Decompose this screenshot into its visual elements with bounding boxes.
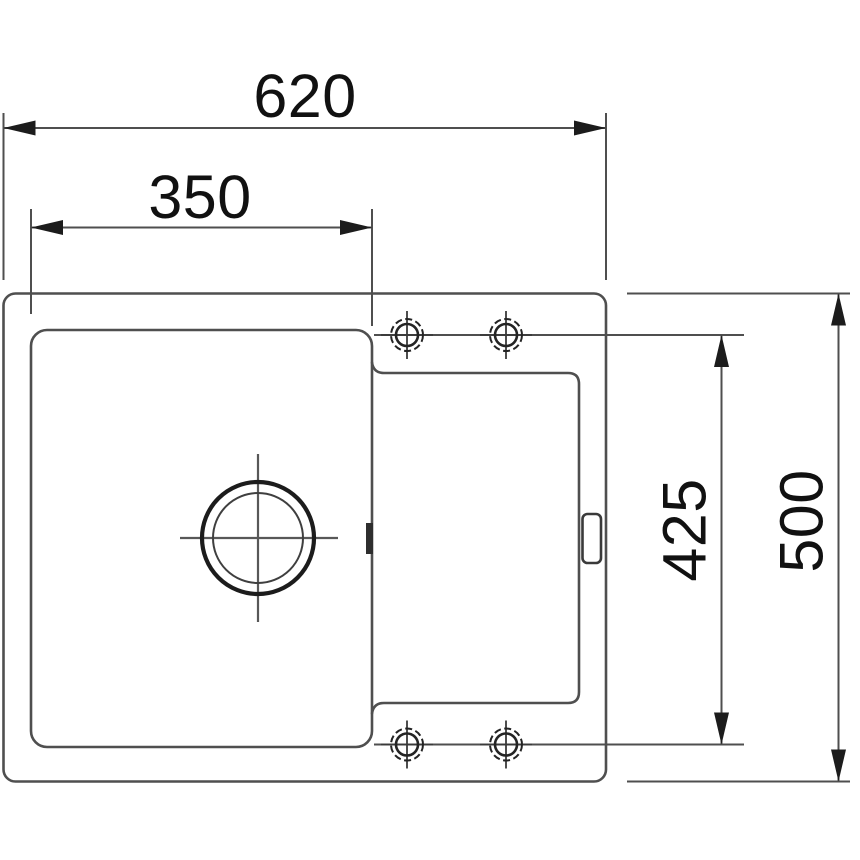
dimension-label-bowl-width: 350 xyxy=(148,163,251,231)
arrowhead-right xyxy=(574,121,606,136)
sink-technical-drawing: 620 350 425 500 xyxy=(0,0,860,860)
arrowhead-right xyxy=(340,220,372,235)
arrowhead-top xyxy=(831,294,846,326)
drain-hole xyxy=(180,454,338,622)
dimension-drawing-svg: 620 350 425 500 xyxy=(0,0,860,860)
dimension-label-overall-width: 620 xyxy=(253,62,356,130)
tap-hole-top-right xyxy=(480,311,532,359)
dimension-bowl-width: 350 xyxy=(31,163,372,326)
tap-hole-top-left xyxy=(381,311,433,359)
dimension-tap-axis-span: 425 xyxy=(650,335,729,745)
dimension-overall-width: 620 xyxy=(4,62,607,280)
tap-hole-bottom-left xyxy=(381,721,433,769)
arrowhead-left xyxy=(4,121,36,136)
drainer-outline xyxy=(372,363,579,714)
arrowhead-top xyxy=(714,335,729,367)
arrowhead-bottom xyxy=(831,750,846,782)
rim-slot xyxy=(583,514,602,563)
arrowhead-bottom xyxy=(714,713,729,745)
tap-hole-bottom-right xyxy=(480,721,532,769)
dimension-label-overall-depth: 500 xyxy=(767,469,835,572)
arrowhead-left xyxy=(31,220,63,235)
dimension-label-tap-axis-span: 425 xyxy=(650,478,718,581)
sink-plan-view xyxy=(4,294,607,782)
